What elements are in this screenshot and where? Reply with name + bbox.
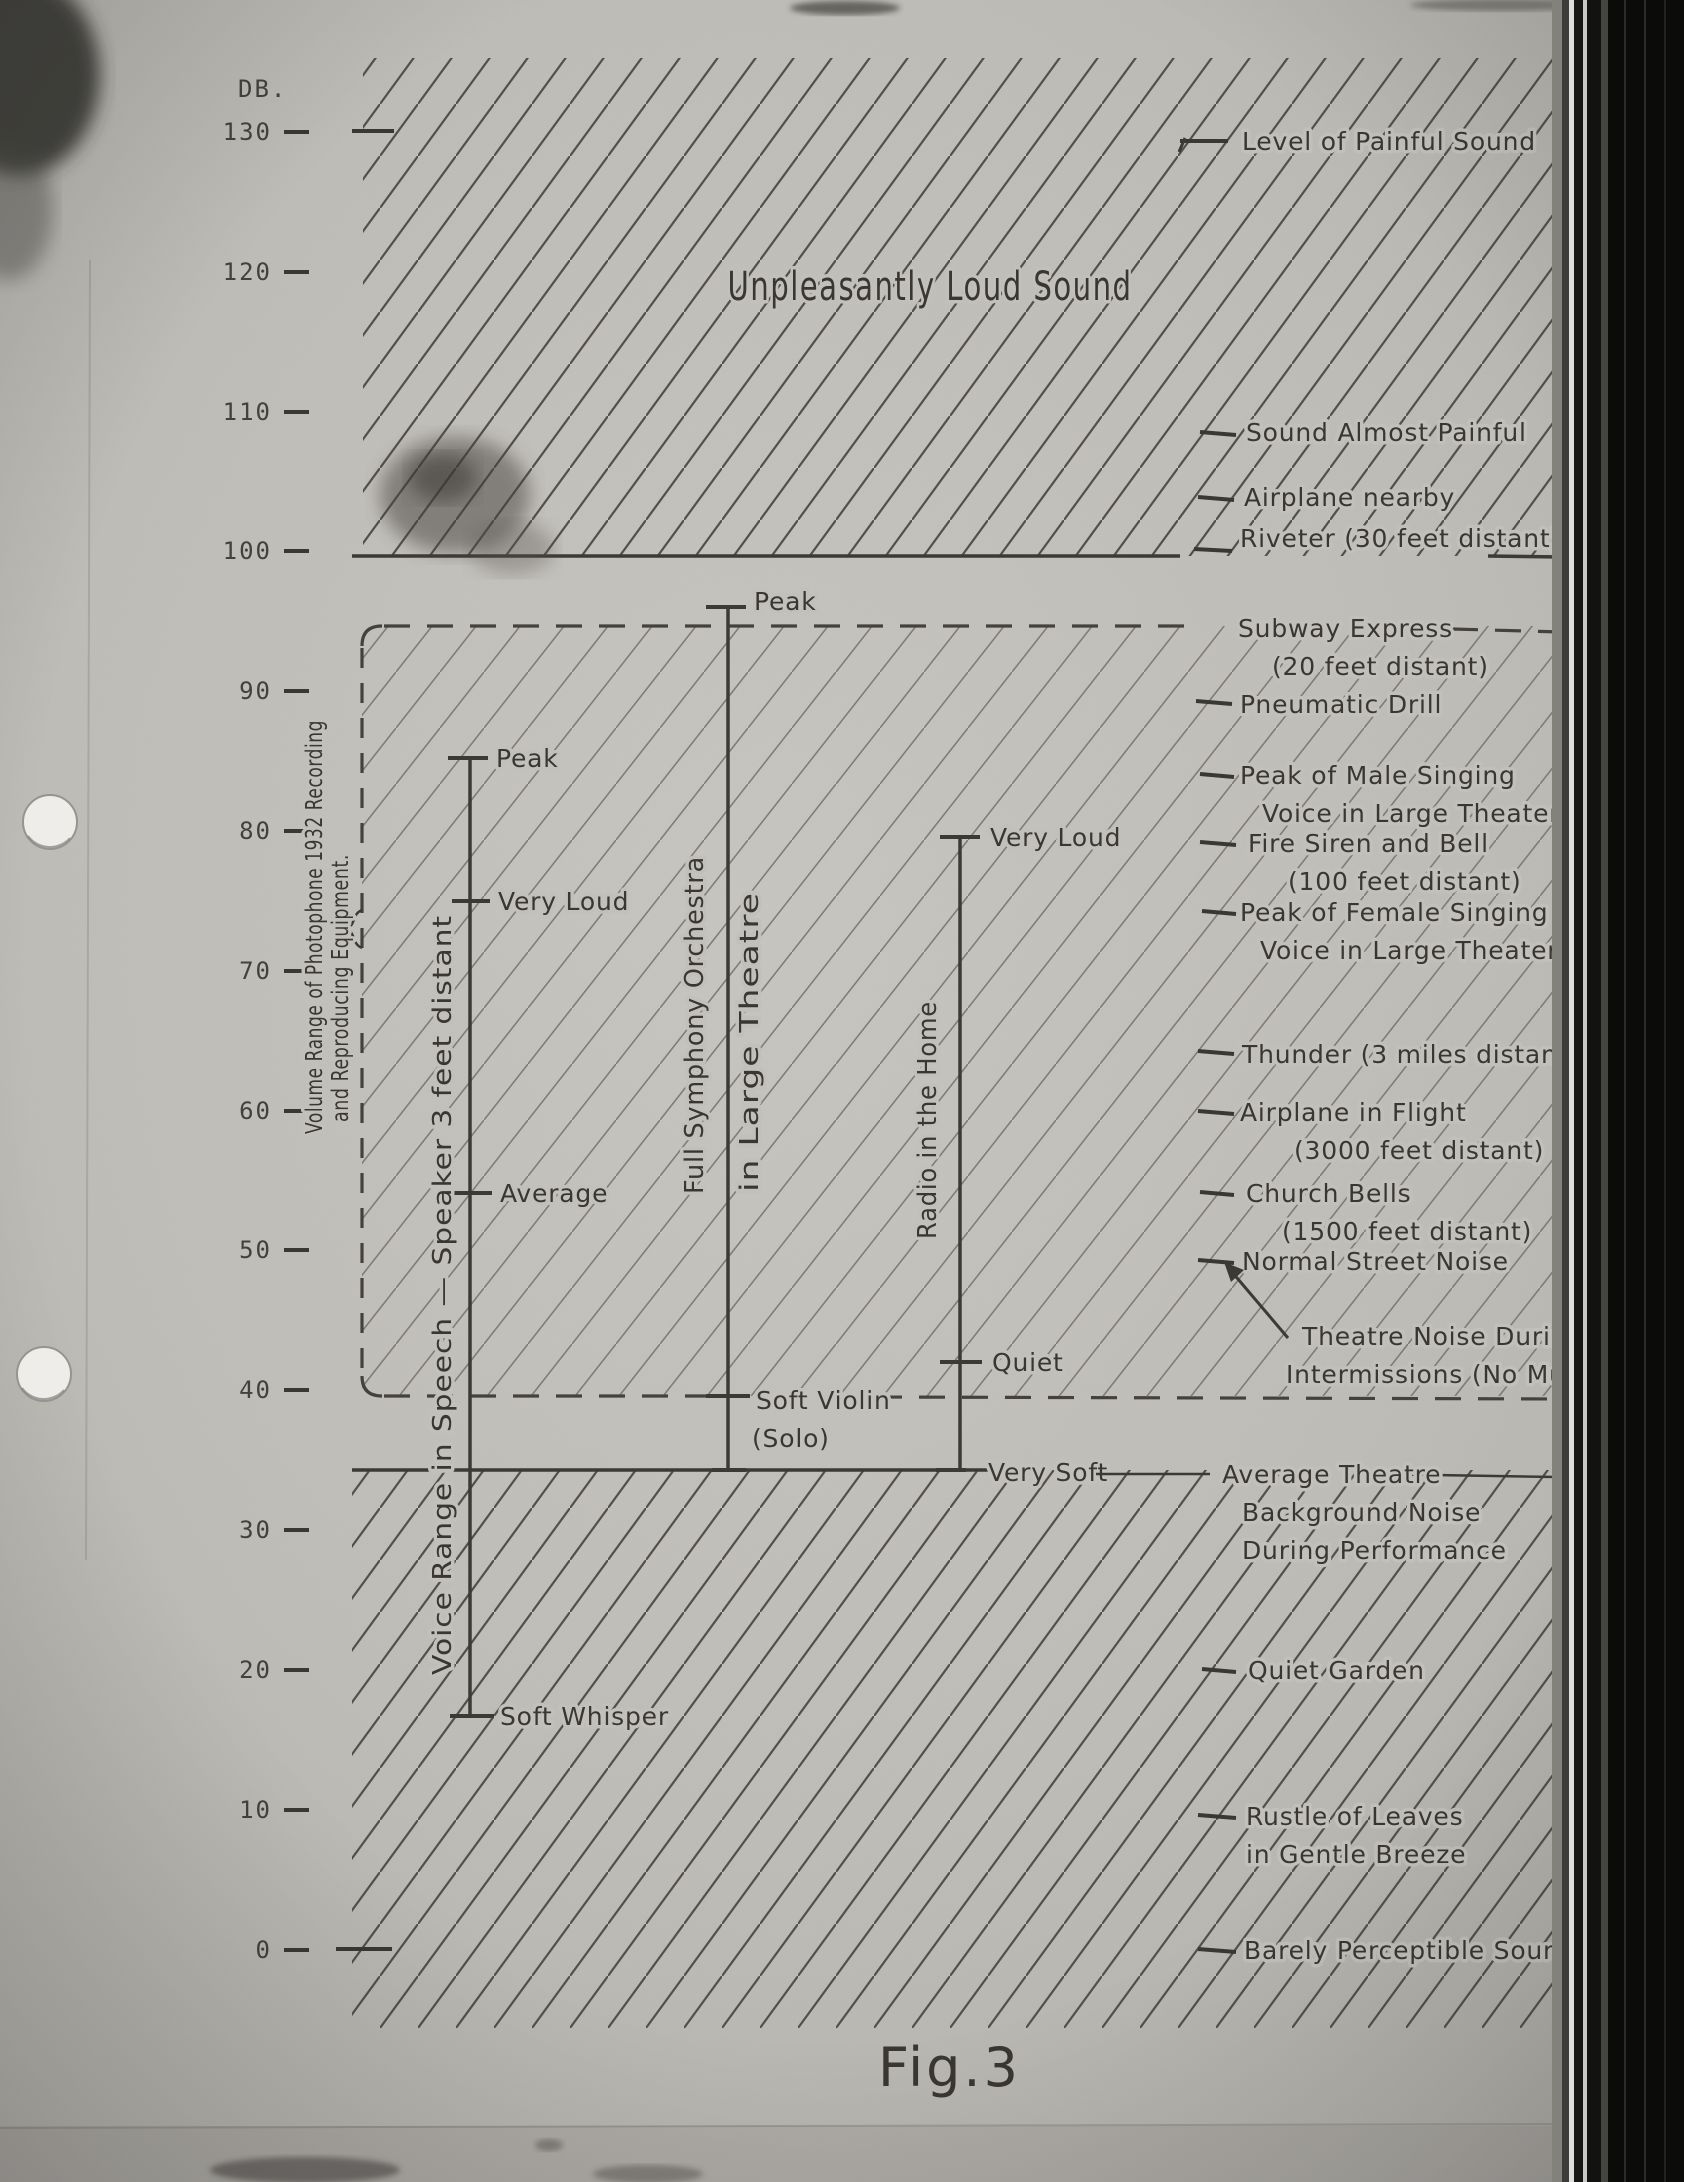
band-white-line-1 (1569, 0, 1574, 2182)
band-dark-2 (1574, 0, 1583, 2182)
band-white-line-2 (1583, 0, 1587, 2182)
vignette-overlay (0, 0, 1684, 2182)
band-dark-3 (1587, 0, 1601, 2182)
band-gray-line (1601, 0, 1608, 2182)
scanner-edge-band (1552, 0, 1684, 2182)
band-dark-1 (1562, 0, 1569, 2182)
scanned-figure-page: DB. 130 120 110 100 90 80 70 (0, 0, 1684, 2182)
